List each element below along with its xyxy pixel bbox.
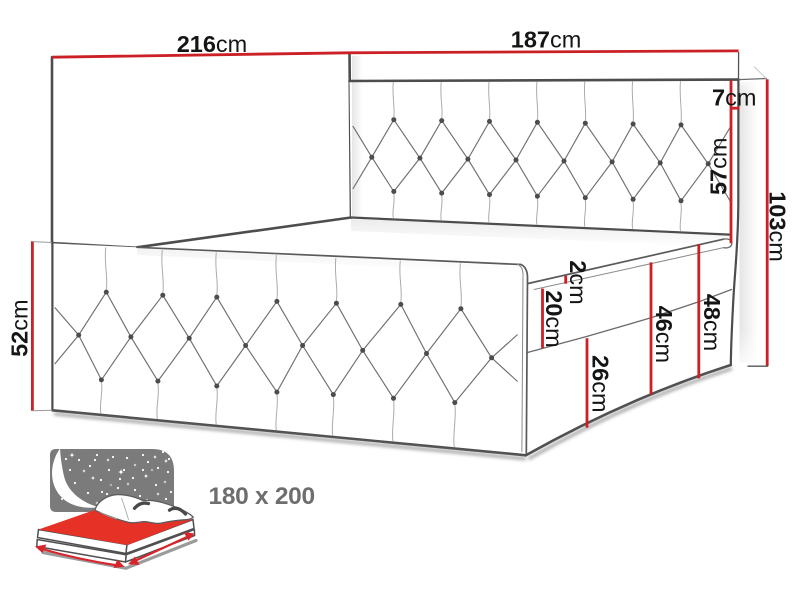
svg-text:2cm: 2cm xyxy=(565,260,591,304)
svg-text:103cm: 103cm xyxy=(765,191,791,262)
svg-text:20cm: 20cm xyxy=(541,290,567,347)
svg-text:187cm: 187cm xyxy=(511,27,582,53)
svg-text:7cm: 7cm xyxy=(712,84,756,110)
svg-text:216cm: 216cm xyxy=(177,31,248,57)
svg-text:57cm: 57cm xyxy=(706,138,732,195)
svg-text:180 x 200: 180 x 200 xyxy=(209,483,315,510)
svg-text:26cm: 26cm xyxy=(588,355,614,412)
svg-text:52cm: 52cm xyxy=(7,299,33,356)
svg-text:48cm: 48cm xyxy=(699,294,725,351)
svg-text:46cm: 46cm xyxy=(651,306,677,363)
